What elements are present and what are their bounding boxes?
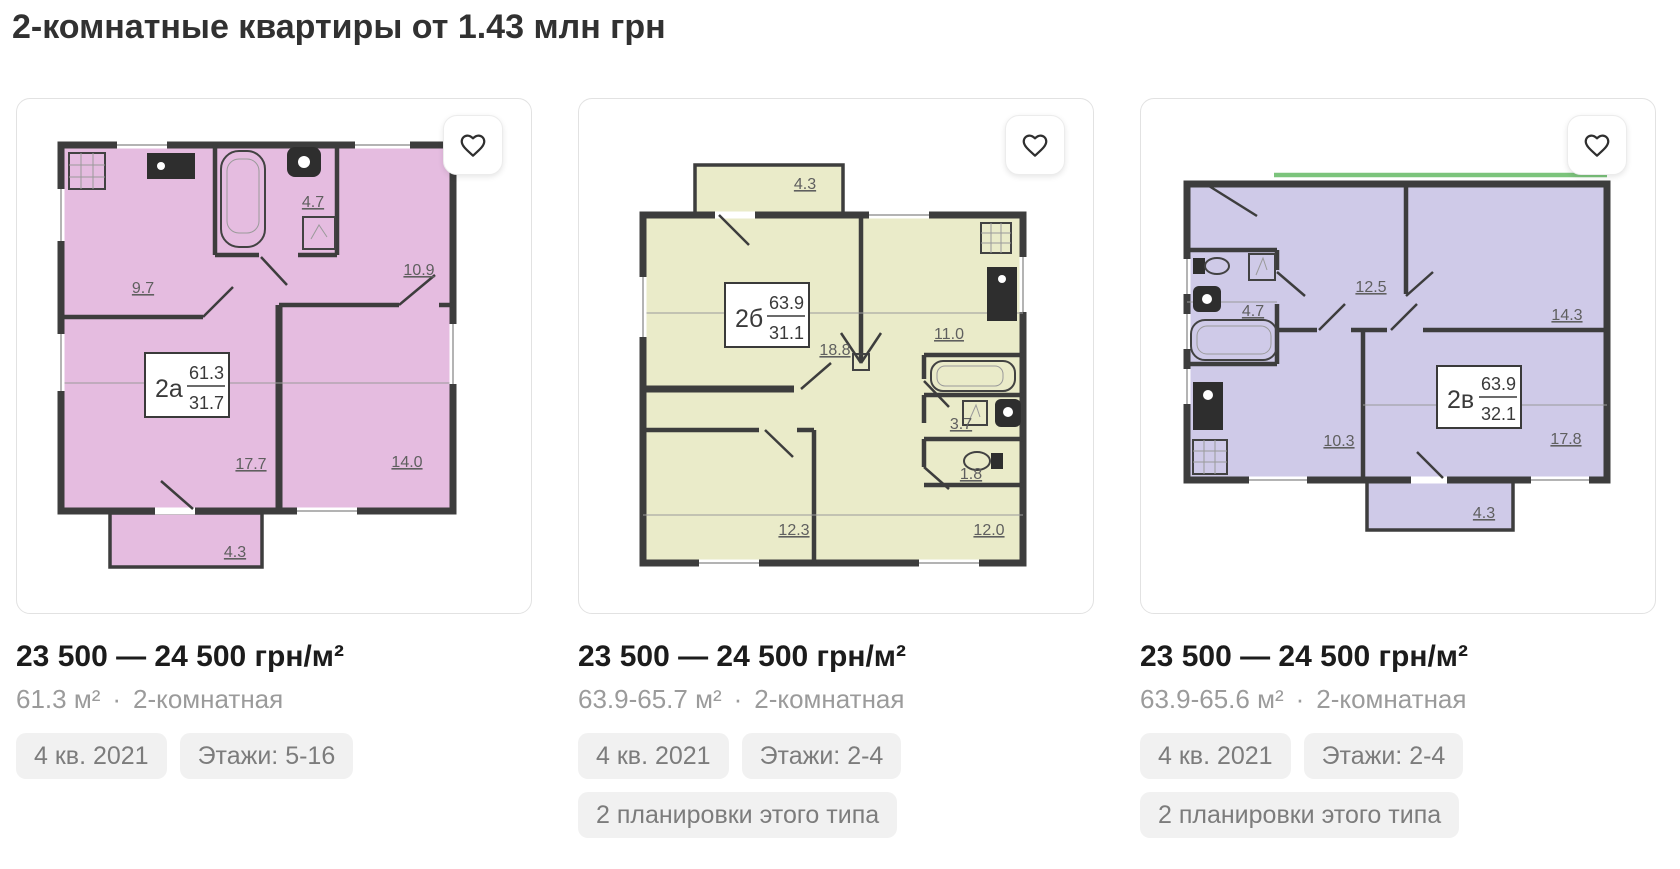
apartment-card-3: 2в 63.9 32.1 12.5 14.3 4.7 10.3 17.8 4.3 (1140, 98, 1656, 838)
apartment-label-box: 2б 63.9 31.1 (725, 283, 809, 347)
room-area-label: 10.3 (1323, 433, 1354, 450)
room-area-label: 14.3 (1551, 307, 1582, 324)
heart-icon (1020, 130, 1050, 160)
floor-plan-svg-2a: 2а 61.3 31.7 9.7 4.7 10.9 17.7 14.0 4.3 (55, 129, 475, 575)
room-area-label: 4.7 (1242, 303, 1264, 320)
apartment-meta: 63.9-65.6 м²·2-комнатная (1140, 684, 1656, 715)
tag-floors: Этажи: 2-4 (742, 733, 902, 779)
favorite-button[interactable] (1567, 115, 1627, 175)
room-area-label: 14.0 (391, 454, 422, 471)
tag-layouts-count: 2 планировки этого типа (578, 792, 897, 838)
room-area-label: 12.5 (1355, 279, 1386, 296)
plan-total-area: 63.9 (1481, 374, 1516, 394)
room-area-label: 17.7 (235, 456, 266, 473)
plan-total-area: 63.9 (769, 293, 804, 313)
room-area-label: 12.0 (973, 522, 1004, 539)
apartment-card-1: 2а 61.3 31.7 9.7 4.7 10.9 17.7 14.0 4.3 (16, 98, 532, 838)
plan-fill (643, 165, 1023, 563)
heart-icon (458, 130, 488, 160)
tag-floors: Этажи: 5-16 (180, 733, 354, 779)
area-value: 63.9-65.7 м² (578, 684, 722, 714)
rooms-count: 2-комнатная (133, 684, 283, 714)
apartment-meta: 61.3 м²·2-комнатная (16, 684, 532, 715)
apartment-card-list: 2а 61.3 31.7 9.7 4.7 10.9 17.7 14.0 4.3 (16, 98, 1680, 838)
tag-list: 4 кв. 2021 Этажи: 5-16 (16, 733, 532, 779)
apartment-card-2: 2б 63.9 31.1 4.3 18.8 11.0 3.7 1.8 12.3 … (578, 98, 1094, 838)
page-title: 2-комнатные квартиры от 1.43 млн грн (12, 6, 1680, 49)
apartment-meta: 63.9-65.7 м²·2-комнатная (578, 684, 1094, 715)
price-range: 23 500 — 24 500 грн/м² (1140, 640, 1656, 674)
floorplan-thumbnail-1[interactable]: 2а 61.3 31.7 9.7 4.7 10.9 17.7 14.0 4.3 (16, 98, 532, 614)
price-range: 23 500 — 24 500 грн/м² (578, 640, 1094, 674)
heart-icon (1582, 130, 1612, 160)
room-area-label: 10.9 (403, 262, 434, 279)
plan-type-label: 2б (735, 305, 763, 333)
tag-list: 4 кв. 2021 Этажи: 2-4 2 планировки этого… (1140, 733, 1656, 838)
room-area-label: 18.8 (819, 342, 850, 359)
favorite-button[interactable] (1005, 115, 1065, 175)
room-area-label: 3.7 (950, 416, 972, 433)
room-area-label: 11.0 (934, 326, 964, 343)
favorite-button[interactable] (443, 115, 503, 175)
tag-completion: 4 кв. 2021 (16, 733, 167, 779)
floorplan-thumbnail-2[interactable]: 2б 63.9 31.1 4.3 18.8 11.0 3.7 1.8 12.3 … (578, 98, 1094, 614)
tag-list: 4 кв. 2021 Этажи: 2-4 2 планировки этого… (578, 733, 1094, 838)
tag-layouts-count: 2 планировки этого типа (1140, 792, 1459, 838)
plan-fill (61, 145, 453, 567)
plan-total-area: 61.3 (189, 363, 224, 383)
room-area-label: 4.3 (1473, 505, 1495, 522)
rooms-count: 2-комнатная (754, 684, 904, 714)
tag-floors: Этажи: 2-4 (1304, 733, 1464, 779)
plan-living-area: 31.1 (769, 323, 804, 343)
room-area-label: 17.8 (1550, 431, 1581, 448)
meta-separator: · (112, 684, 121, 714)
room-area-label: 4.7 (302, 194, 324, 211)
floor-plan-svg-2v: 2в 63.9 32.1 12.5 14.3 4.7 10.3 17.8 4.3 (1179, 154, 1619, 539)
meta-separator: · (1296, 684, 1305, 714)
plan-living-area: 31.7 (189, 393, 224, 413)
room-area-label: 4.3 (224, 544, 246, 561)
apartment-label-box: 2в 63.9 32.1 (1437, 366, 1521, 428)
area-value: 61.3 м² (16, 684, 100, 714)
floor-plan-svg-2b: 2б 63.9 31.1 4.3 18.8 11.0 3.7 1.8 12.3 … (619, 127, 1039, 577)
tag-completion: 4 кв. 2021 (1140, 733, 1291, 779)
tag-completion: 4 кв. 2021 (578, 733, 729, 779)
plan-type-label: 2а (155, 375, 183, 403)
room-area-label: 9.7 (132, 280, 154, 297)
room-area-label: 4.3 (794, 176, 816, 193)
rooms-count: 2-комнатная (1316, 684, 1466, 714)
plan-living-area: 32.1 (1481, 404, 1516, 424)
floorplan-thumbnail-3[interactable]: 2в 63.9 32.1 12.5 14.3 4.7 10.3 17.8 4.3 (1140, 98, 1656, 614)
plan-type-label: 2в (1447, 386, 1474, 414)
meta-separator: · (734, 684, 743, 714)
apartment-label-box: 2а 61.3 31.7 (145, 353, 229, 417)
price-range: 23 500 — 24 500 грн/м² (16, 640, 532, 674)
room-area-label: 12.3 (778, 522, 809, 539)
room-area-label: 1.8 (960, 466, 982, 483)
area-value: 63.9-65.6 м² (1140, 684, 1284, 714)
